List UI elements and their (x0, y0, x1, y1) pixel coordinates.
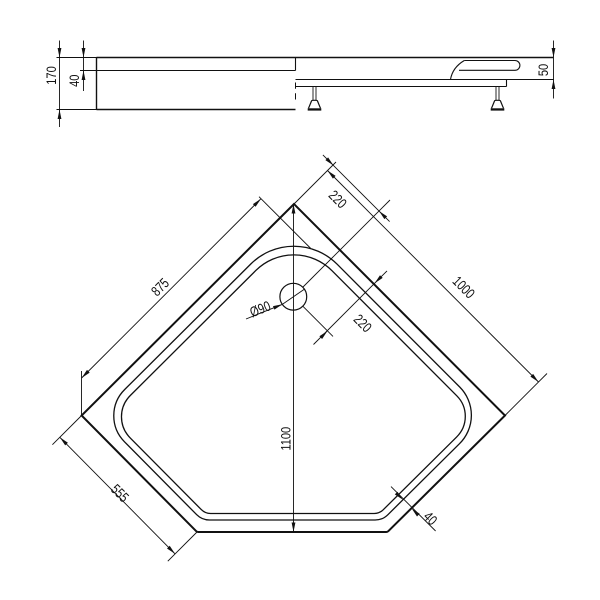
svg-text:50: 50 (535, 64, 552, 76)
svg-text:1100: 1100 (277, 427, 294, 451)
svg-text:40: 40 (66, 75, 83, 87)
svg-text:170: 170 (43, 66, 60, 84)
